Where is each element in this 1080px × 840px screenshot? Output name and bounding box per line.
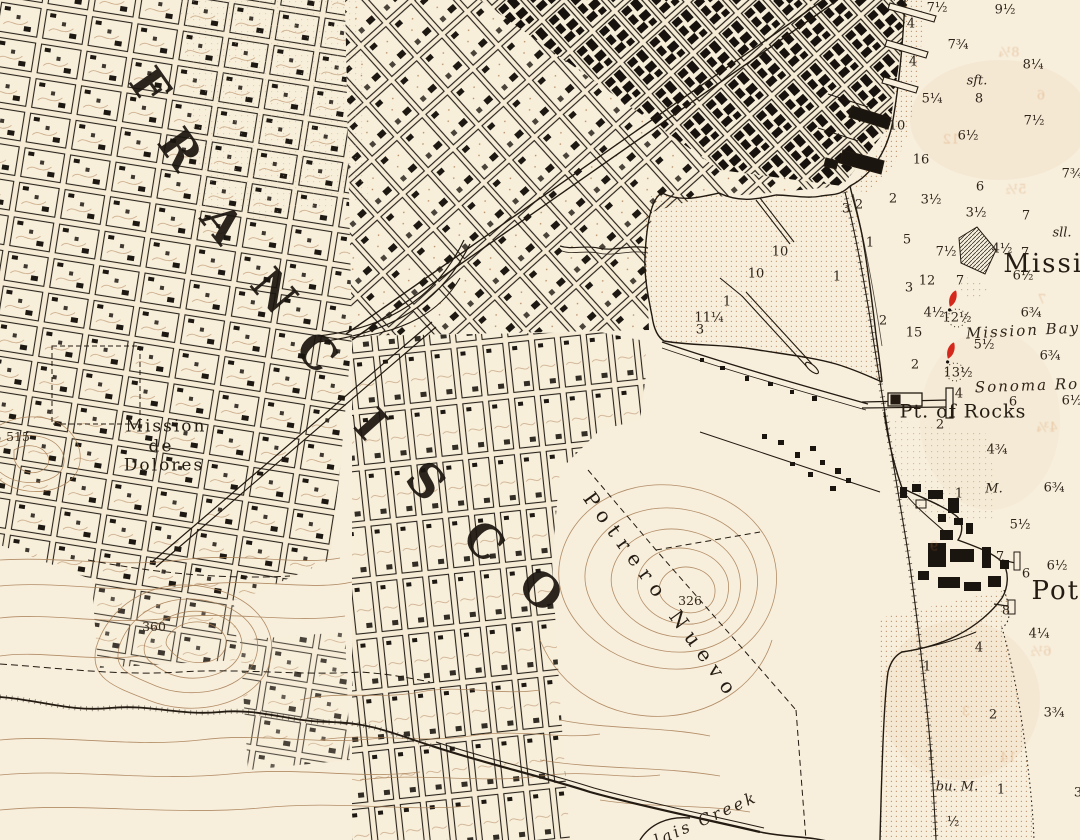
map-canvas[interactable]: FRANCISCO MissiondeDoloresPt. of RocksMi… — [0, 0, 1080, 840]
map-artwork — [0, 0, 1080, 840]
